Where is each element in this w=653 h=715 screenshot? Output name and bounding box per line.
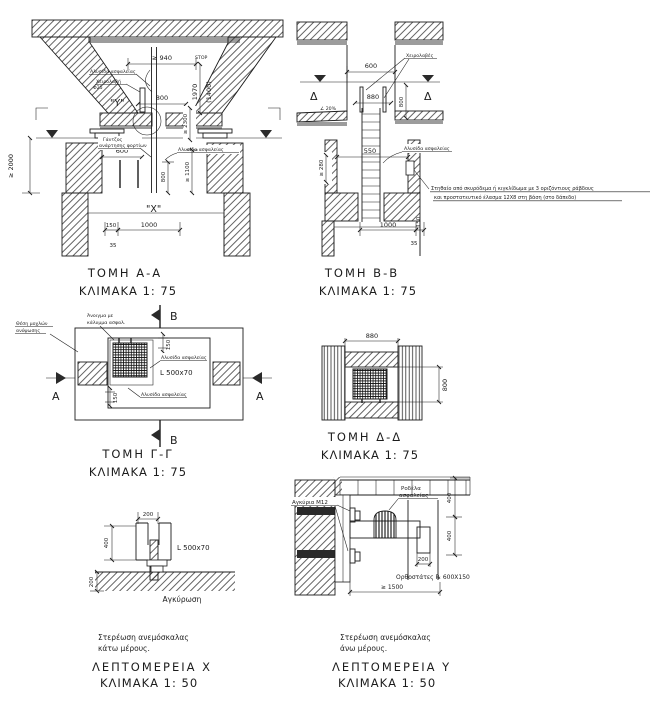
leader-line — [128, 388, 140, 397]
dim-150: 150 — [106, 223, 117, 229]
dim-600: 600 — [365, 62, 377, 70]
label-lifting-levers-2: ανύψωσης — [16, 327, 40, 334]
pit-wall-upper-left — [66, 143, 102, 193]
detail-title-x: ΛΕΠΤΟΜΕΡΕΙΑ Χ — [92, 660, 212, 674]
pit-wall-lower-right — [224, 193, 250, 256]
leader-line — [126, 84, 140, 92]
floor-band-left — [100, 113, 152, 126]
label-safety-washer-2: ασφαλείας — [399, 492, 428, 499]
mounting-plate — [335, 495, 350, 582]
label-safety-chain-lower: Αλυσίδα ασφαλείας — [178, 146, 224, 153]
section-b-letter-top: Β — [170, 310, 178, 323]
section-b-letter-bottom: Β — [170, 434, 178, 447]
pier-right — [213, 362, 240, 385]
mark-point-x: "Χ" — [146, 204, 161, 215]
deep-wall-left — [322, 221, 334, 256]
slab-right — [395, 22, 443, 40]
detail-scale-x: ΚΛΙΜΑΚΑ 1: 50 — [100, 676, 198, 690]
label-safety-chain-upper: Αλυσίδα ασφαλείας — [90, 68, 136, 75]
section-g-g: Α Α Β Β 150 150 L 500x70 Αλυσίδα ασφαλεί… — [15, 305, 272, 479]
section-scale-d-d: ΚΛΙΜΑΚΑ 1: 75 — [321, 448, 419, 462]
dim-280: ≥ 280 — [319, 159, 325, 176]
drawing-sheet: Αλυσίδα ασφαλείας Χειρολαβή Φ25 "Υ" ≥ 94… — [0, 0, 653, 715]
level-mark-left — [46, 130, 58, 138]
level-mark-right — [422, 75, 434, 82]
section-title-b-b: ΤΟΜΗ Β-Β — [324, 266, 399, 280]
label-anchoring: Αγκύρωση — [163, 595, 202, 604]
handle-post — [383, 87, 386, 112]
wall-band-right — [398, 346, 422, 420]
slab-top — [345, 352, 398, 367]
leader-line — [150, 361, 160, 368]
dim-2000: ≥ 2000 — [7, 154, 15, 178]
label-safety-chain-1: Αλυσίδα ασφαλείας — [161, 354, 207, 361]
dim-550: 550 — [364, 147, 376, 155]
floor-slab-right — [395, 111, 443, 120]
dim-800-top: 800 — [156, 94, 168, 102]
section-d-d: 880 800 ΤΟΜΗ Δ-Δ ΚΛΙΜΑΚΑ 1: 75 — [321, 332, 449, 462]
dim-35: 35 — [411, 241, 418, 247]
caption-fixing-lower-1: Στερέωση ανεμόσκαλας — [98, 633, 189, 642]
detail-x: 200 400 200 L 500x70 Αγκύρωση Στερέωση α… — [89, 512, 235, 690]
section-a-cut-mark-right — [252, 372, 262, 384]
pit-inner-outline — [88, 213, 224, 256]
section-a-a: Αλυσίδα ασφαλείας Χειρολαβή Φ25 "Υ" ≥ 94… — [7, 20, 283, 298]
floor-slab-left — [297, 111, 347, 122]
section-a-letter-right: Α — [256, 390, 264, 403]
dim-150-top: 150 — [166, 339, 172, 350]
safety-washer-block — [374, 511, 396, 538]
section-title-d-d: ΤΟΜΗ Δ-Δ — [327, 430, 402, 444]
label-angle-profile: L 500x70 — [160, 369, 193, 377]
leader-line — [165, 153, 177, 160]
section-title-g-g: ΤΟΜΗ Γ-Γ — [101, 447, 173, 461]
section-d-plane-mark-left: Δ — [310, 90, 318, 103]
section-scale-g-g: ΚΛΙΜΑΚΑ 1: 75 — [89, 465, 187, 479]
anchor-embed-lower — [297, 550, 335, 558]
dim-880: 880 — [366, 332, 378, 340]
slab-left — [297, 22, 347, 40]
post-slot — [417, 527, 430, 553]
ladder — [362, 108, 380, 222]
label-handle-dia: Φ25 — [93, 85, 103, 91]
slab-bottom — [345, 402, 398, 418]
dim-940: ≥ 940 — [152, 54, 172, 62]
caption-fixing-upper-1: Στερέωση ανεμόσκαλας — [340, 633, 431, 642]
protective-plate — [406, 161, 414, 175]
level-mark-left — [314, 75, 326, 82]
leader-line — [140, 148, 151, 157]
level-mark-right — [260, 130, 272, 138]
dim-1000: 1000 — [380, 221, 397, 229]
dim-1970: 1970 — [191, 84, 199, 101]
dim-880: 880 — [367, 93, 379, 101]
leader-line — [50, 334, 78, 352]
label-handle: Χειρολαβή — [96, 78, 121, 85]
label-safety-washer-1: Ροδέλα — [401, 485, 421, 492]
label-opening-cover-1: Άνοιγμα με — [87, 312, 114, 319]
slab-shadow-strip — [88, 37, 240, 43]
handle-post — [360, 87, 363, 112]
label-stop: STOP — [195, 55, 208, 61]
pier-left — [78, 362, 107, 385]
grating-opening — [353, 369, 387, 399]
base-mass-right — [384, 193, 420, 221]
detail-title-y: ΛΕΠΤΟΜΕΡΕΙΑ Υ — [332, 660, 451, 674]
detail-y: Αγκύρια Μ12 Ροδέλα ασφαλείας 400 400 200… — [290, 477, 470, 690]
leader-line — [383, 152, 402, 163]
dim-35: 35 — [110, 243, 117, 249]
section-a-cut-mark-left — [56, 372, 66, 384]
label-safety-chain: Αλυσίδα ασφαλείας — [404, 145, 450, 152]
section-d-plane-mark-right: Δ — [424, 90, 432, 103]
base-mass-left — [325, 193, 358, 221]
anchor-embed-upper — [297, 507, 335, 515]
label-lifting-levers-1: Θέση μοχλών — [16, 320, 48, 327]
mark-point-y: "Υ" — [110, 98, 125, 109]
dim-1500: ≥ 1500 — [381, 584, 403, 591]
dim-800-pit: 800 — [161, 171, 167, 182]
dim-800: 800 — [441, 379, 449, 391]
label-opening-cover-2: κάλυμμα ασφαλ. — [87, 319, 125, 326]
grating-opening — [113, 343, 147, 377]
dim-400-upper: 400 — [447, 492, 453, 503]
section-b-cut-mark-bottom — [151, 429, 160, 441]
dim-200-top: 200 — [143, 512, 154, 518]
technical-drawing: Αλυσίδα ασφαλείας Χειρολαβή Φ25 "Υ" ≥ 94… — [0, 0, 653, 715]
caption-fixing-upper-2: άνω μέρους. — [340, 644, 387, 653]
caption-fixing-lower-2: κάτω μέρους. — [98, 644, 150, 653]
dim-1400: (1400) — [205, 81, 213, 103]
nut-lower — [355, 552, 360, 561]
bolt-upper — [350, 508, 355, 522]
dim-2300: ≥ 2300 — [183, 113, 189, 134]
dim-400-lower: 400 — [447, 530, 453, 541]
section-title-a-a: ΤΟΜΗ Α-Α — [87, 266, 162, 280]
top-slab-hatch — [32, 20, 283, 37]
section-g-plane-marks — [36, 108, 280, 120]
pit-inner-outline — [334, 227, 420, 256]
dim-200-bottom: 200 — [89, 576, 95, 587]
dim-1100: ≥ 1100 — [185, 161, 191, 182]
bolt-lower — [350, 549, 355, 563]
nut-upper — [355, 511, 360, 520]
section-scale-b-b: ΚΛΙΜΑΚΑ 1: 75 — [319, 284, 417, 298]
dim-150-bottom: 150 — [113, 392, 119, 403]
section-b-cut-mark-top — [151, 309, 160, 321]
label-hook: Γάντζος — [103, 136, 123, 143]
label-safety-chain-2: Αλυσίδα ασφαλείας — [141, 391, 187, 398]
detail-scale-y: ΚΛΙΜΑΚΑ 1: 50 — [338, 676, 436, 690]
wall-band-left — [322, 346, 345, 420]
note-parapet-line1: Στηθαίο από σκυρόδεμα ή κιγκλίδωμα με 3 … — [431, 185, 594, 192]
leader-line — [389, 499, 398, 510]
section-a-letter-left: Α — [52, 390, 60, 403]
label-posts-profile: Ορθοστάτες ℞ 600X150 — [396, 574, 470, 581]
label-hook2: ανάρτησης φορτίων — [99, 142, 147, 149]
nut — [151, 566, 163, 572]
washer — [147, 560, 167, 566]
safety-chain-curve — [145, 70, 152, 92]
dim-400: 400 — [104, 537, 110, 548]
dim-1000: 1000 — [141, 221, 158, 229]
label-handles: Χειρολαβές — [406, 52, 434, 59]
dim-150: 150 — [416, 216, 422, 227]
note-parapet-line2: και προστατευτικό έλασμα 12Χ8 στη βάση (… — [434, 194, 576, 201]
section-scale-a-a: ΚΛΙΜΑΚΑ 1: 75 — [79, 284, 177, 298]
label-angle-profile: L 500x70 — [177, 544, 210, 552]
label-anchors-m12: Αγκύρια Μ12 — [292, 499, 328, 506]
pit-wall-lower-left — [62, 193, 88, 256]
dim-800: 800 — [399, 96, 405, 107]
floor-hatch — [95, 572, 235, 591]
section-b-b: Χειρολαβές 600 Δ Δ 880 800 ∠ 20% 550 ≥ 2 — [297, 22, 650, 298]
dim-200: 200 — [418, 557, 429, 563]
leader-line — [136, 74, 150, 86]
